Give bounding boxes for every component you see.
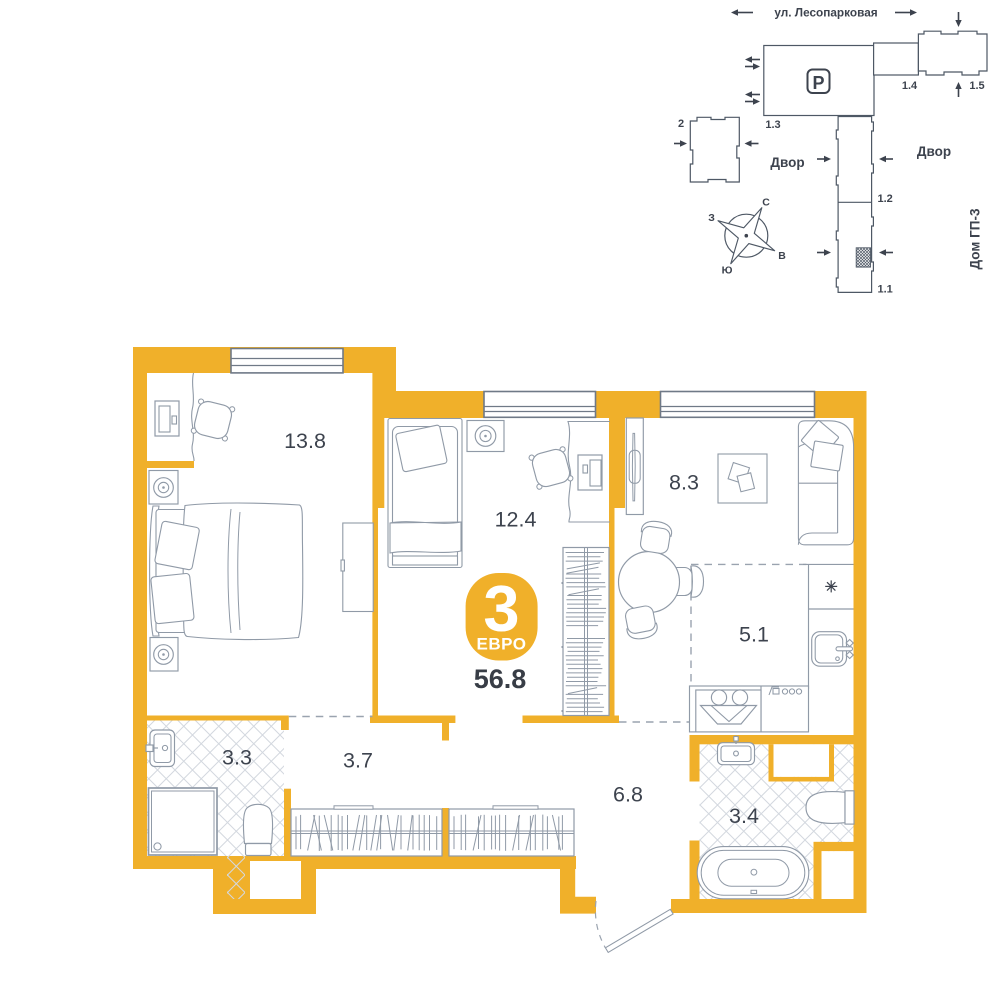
svg-text:12.4: 12.4 xyxy=(495,508,537,532)
svg-text:1.5: 1.5 xyxy=(969,80,984,92)
svg-text:6.8: 6.8 xyxy=(613,783,643,807)
svg-text:ул. Лесопарковая: ул. Лесопарковая xyxy=(774,6,877,20)
svg-text:2: 2 xyxy=(678,118,684,130)
svg-text:3.7: 3.7 xyxy=(343,749,373,773)
svg-text:С: С xyxy=(762,197,770,209)
svg-text:3.4: 3.4 xyxy=(729,804,759,828)
svg-text:13.8: 13.8 xyxy=(284,429,326,453)
svg-text:56.8: 56.8 xyxy=(474,664,527,694)
svg-text:Двор: Двор xyxy=(917,144,951,159)
svg-text:1.4: 1.4 xyxy=(902,80,918,92)
svg-text:З: З xyxy=(708,212,715,224)
svg-text:P: P xyxy=(812,73,824,93)
svg-text:Ю: Ю xyxy=(722,265,733,277)
svg-text:В: В xyxy=(778,250,786,262)
svg-text:Дом ГП-3: Дом ГП-3 xyxy=(968,208,983,269)
svg-text:8.3: 8.3 xyxy=(669,471,699,495)
svg-text:1.3: 1.3 xyxy=(765,119,780,131)
svg-text:3.3: 3.3 xyxy=(222,746,252,770)
svg-text:ЕВРО: ЕВРО xyxy=(477,635,527,654)
svg-text:1.1: 1.1 xyxy=(878,284,893,296)
svg-text:Двор: Двор xyxy=(770,155,804,170)
svg-text:5.1: 5.1 xyxy=(739,623,769,647)
svg-text:1.2: 1.2 xyxy=(878,193,893,205)
